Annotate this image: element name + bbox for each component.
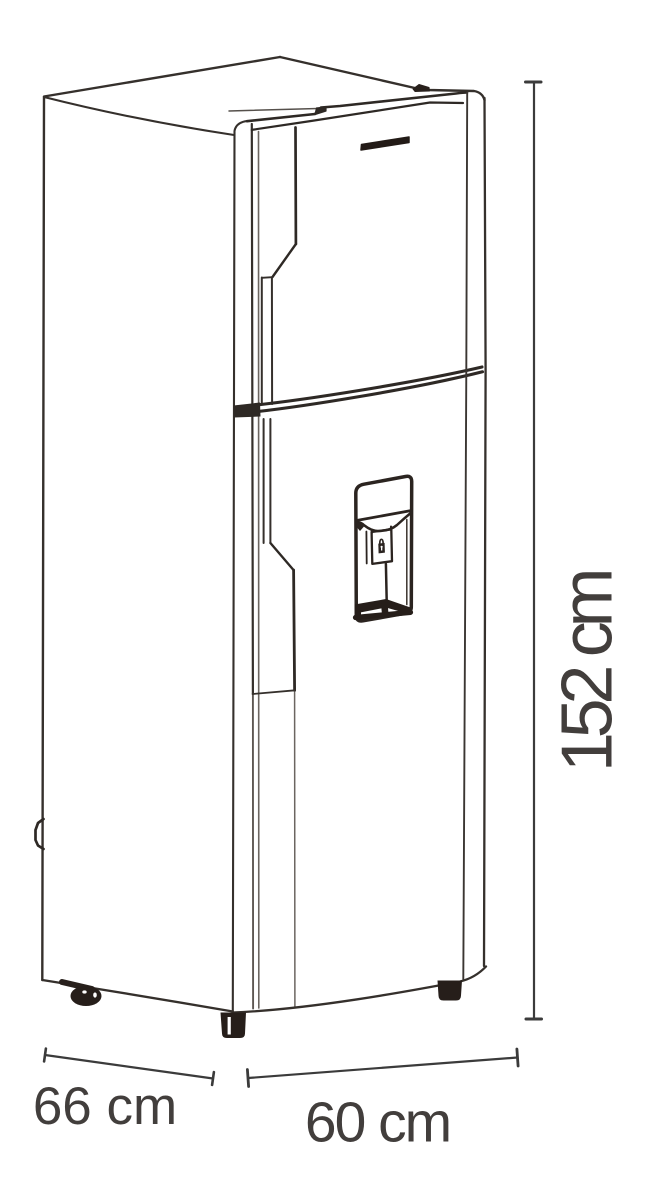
svg-text:60 cm: 60 cm — [305, 1091, 450, 1155]
svg-text:152 cm: 152 cm — [548, 572, 628, 773]
svg-text:66 cm: 66 cm — [33, 1077, 177, 1136]
